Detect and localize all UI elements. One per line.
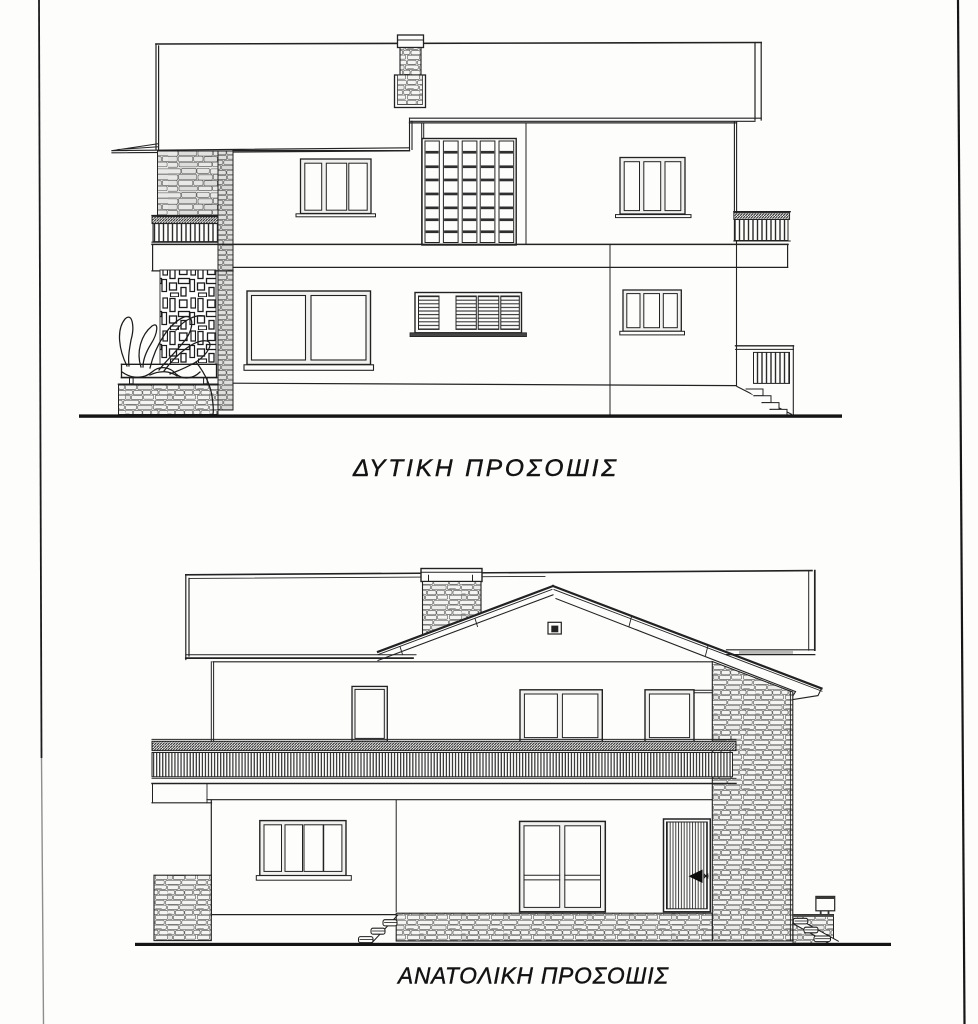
svg-text:ΑΝΑΤΟΛΙΚΗ ΠΡΟΣΟШΙΣ: ΑΝΑΤΟΛΙΚΗ ΠΡΟΣΟШΙΣ	[396, 963, 669, 989]
